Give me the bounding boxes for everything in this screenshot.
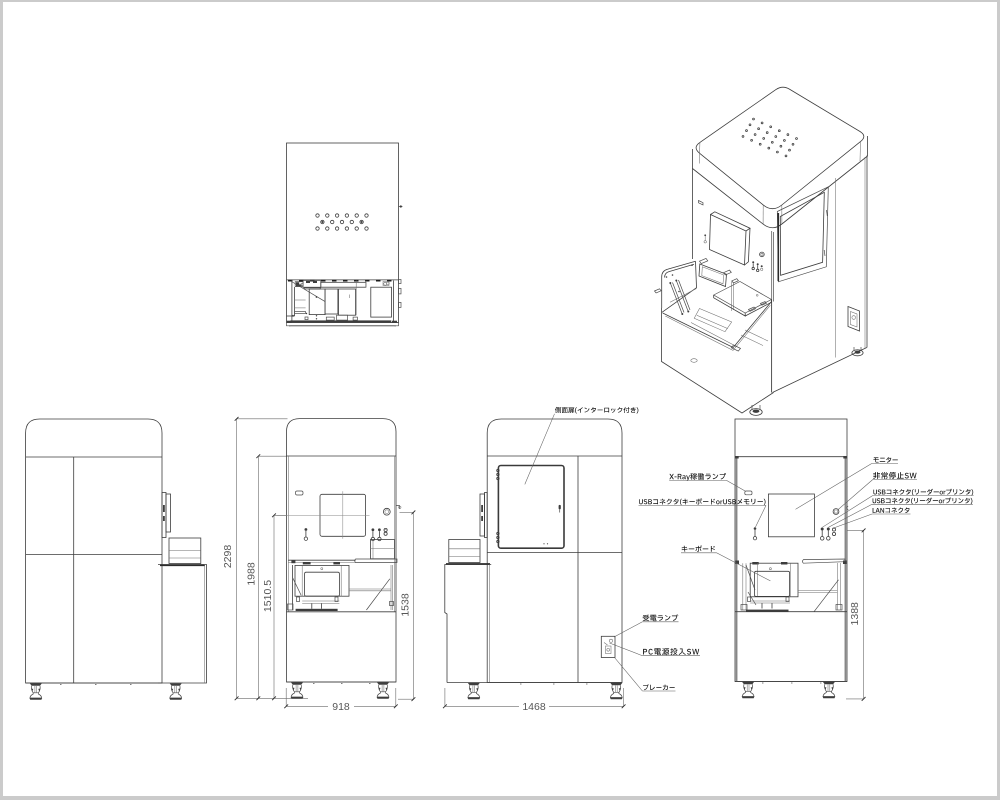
svg-text:1538: 1538 — [400, 593, 412, 617]
svg-text:1510.5: 1510.5 — [262, 580, 274, 612]
svg-text:2298: 2298 — [222, 545, 234, 569]
svg-text:1988: 1988 — [246, 562, 258, 586]
svg-text:1468: 1468 — [522, 701, 546, 713]
svg-text:918: 918 — [332, 701, 350, 713]
svg-text:1388: 1388 — [849, 602, 861, 626]
